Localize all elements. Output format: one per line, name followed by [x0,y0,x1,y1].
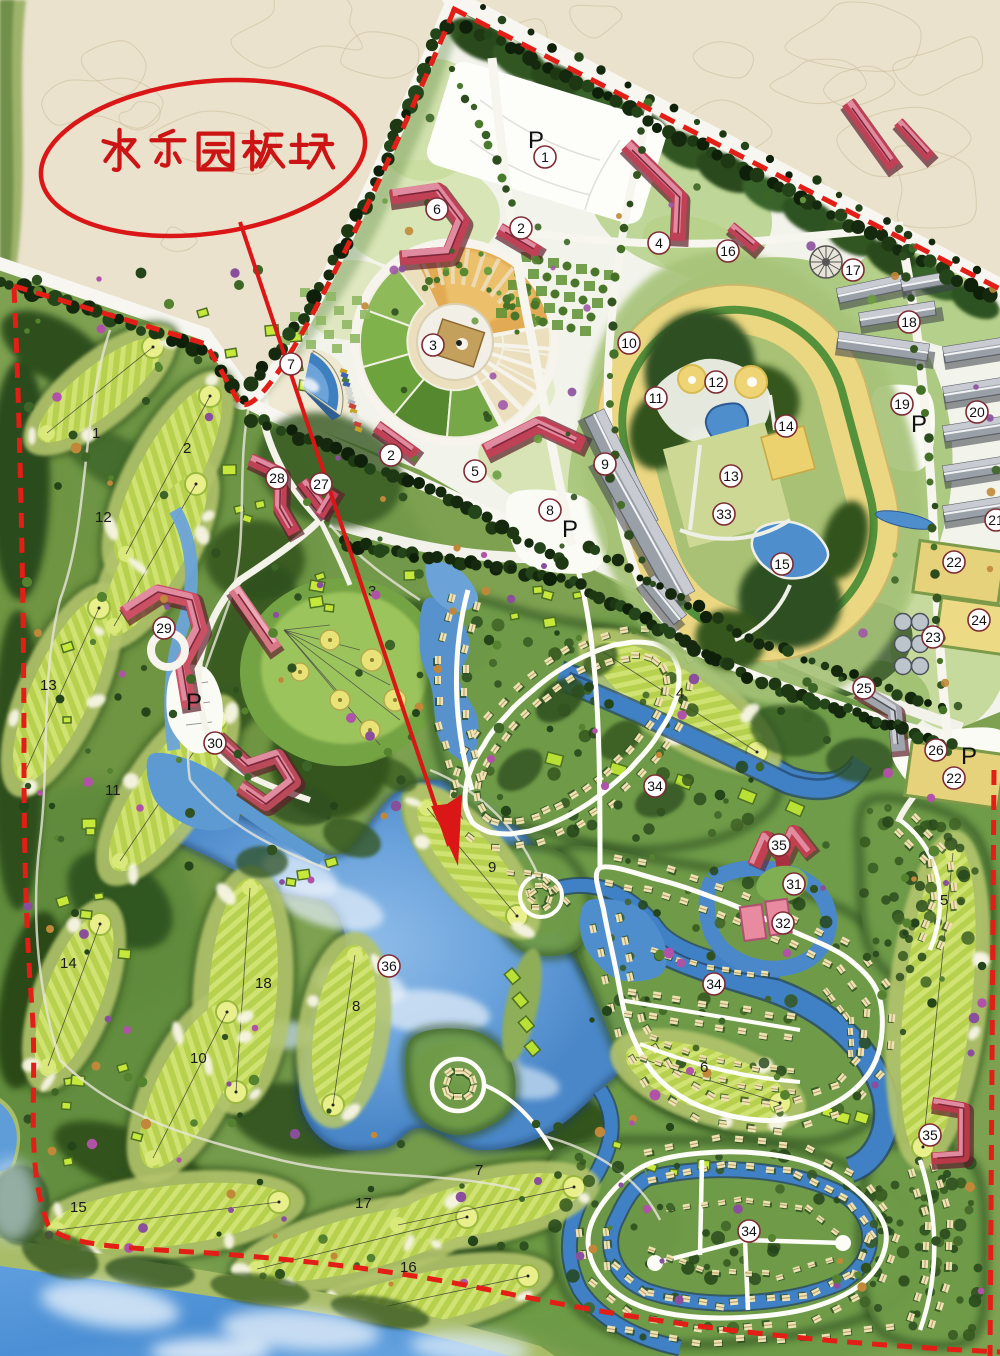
svg-text:14: 14 [778,418,794,434]
svg-text:8: 8 [352,998,360,1015]
svg-text:P: P [528,127,544,154]
svg-text:7: 7 [287,356,295,372]
svg-text:11: 11 [649,390,664,406]
svg-text:24: 24 [971,612,987,628]
svg-text:22: 22 [946,554,962,570]
svg-text:6: 6 [700,1059,708,1076]
svg-text:6: 6 [433,201,441,217]
svg-text:7: 7 [475,1162,483,1179]
svg-text:4: 4 [676,685,684,702]
svg-text:23: 23 [925,629,941,645]
svg-text:32: 32 [775,915,791,931]
svg-text:2: 2 [387,447,395,463]
svg-text:28: 28 [269,470,285,486]
svg-text:9: 9 [601,456,609,472]
svg-text:8: 8 [546,502,554,518]
svg-text:P: P [961,743,977,770]
svg-text:30: 30 [207,735,223,751]
svg-text:11: 11 [105,782,121,799]
svg-text:1: 1 [92,425,100,442]
svg-text:12: 12 [708,374,724,390]
svg-text:29: 29 [156,620,172,636]
svg-text:16: 16 [720,243,736,259]
svg-text:13: 13 [40,677,57,694]
svg-text:P: P [186,689,202,716]
svg-text:5: 5 [471,463,479,479]
svg-text:14: 14 [60,955,77,972]
svg-text:2: 2 [183,440,191,457]
svg-text:33: 33 [716,506,732,522]
svg-text:22: 22 [946,770,962,786]
svg-text:17: 17 [355,1195,372,1212]
svg-text:34: 34 [706,976,722,992]
svg-text:2: 2 [517,220,525,236]
svg-text:12: 12 [95,509,112,526]
svg-text:18: 18 [901,314,917,330]
svg-text:31: 31 [786,876,802,892]
svg-text:35: 35 [922,1127,938,1143]
svg-text:9: 9 [488,859,496,876]
svg-text:17: 17 [845,262,861,278]
svg-text:19: 19 [894,396,910,412]
svg-text:13: 13 [723,468,739,484]
svg-text:3: 3 [429,337,437,353]
svg-text:4: 4 [655,235,663,251]
svg-text:15: 15 [774,556,790,572]
svg-text:36: 36 [381,958,397,974]
svg-text:P: P [562,516,578,543]
svg-text:25: 25 [856,680,872,696]
svg-text:27: 27 [313,476,329,492]
svg-text:P: P [911,411,927,438]
svg-text:18: 18 [255,975,272,992]
svg-text:26: 26 [928,742,944,758]
svg-text:10: 10 [190,1050,207,1067]
svg-text:34: 34 [647,778,663,794]
svg-text:35: 35 [771,837,787,853]
svg-text:20: 20 [969,404,985,420]
svg-text:21: 21 [988,512,1000,528]
svg-text:15: 15 [70,1199,87,1216]
svg-text:16: 16 [400,1259,417,1276]
svg-text:10: 10 [621,335,637,351]
svg-text:34: 34 [741,1223,757,1239]
svg-text:5: 5 [940,892,948,909]
